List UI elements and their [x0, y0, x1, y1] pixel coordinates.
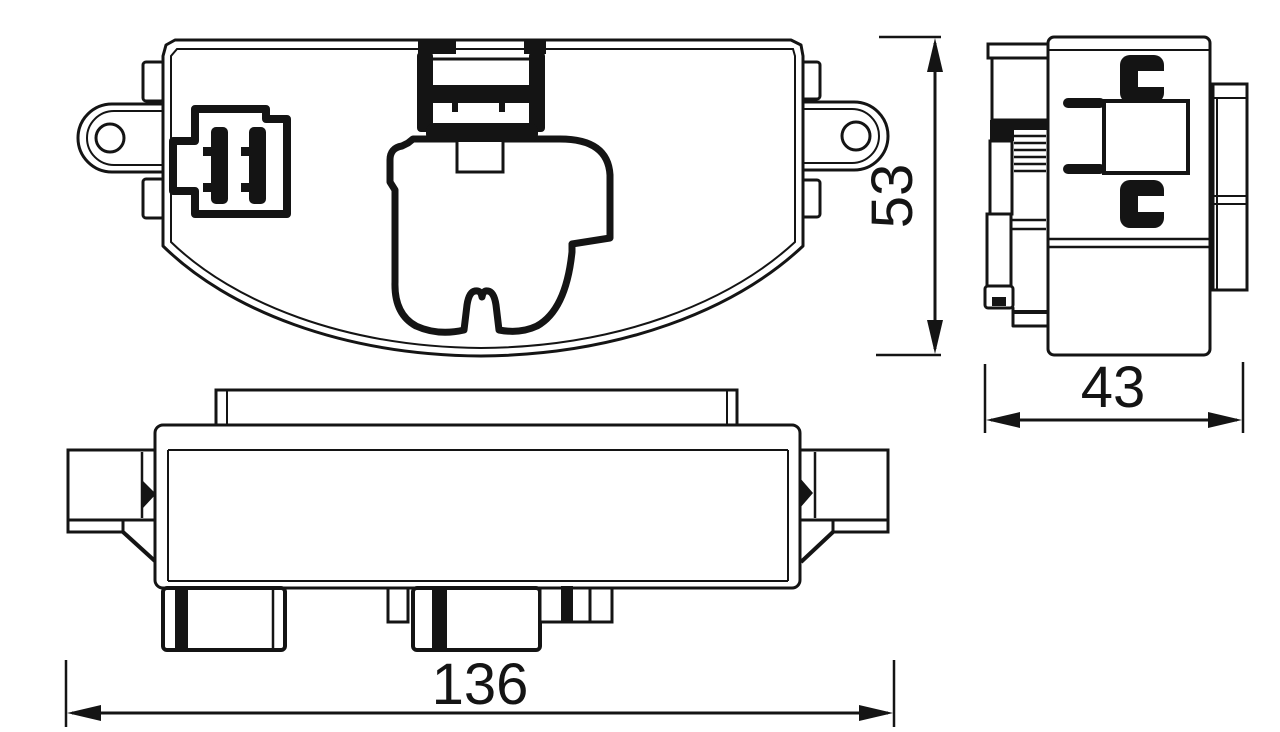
- front-view: [78, 40, 888, 356]
- edge-stub: [143, 179, 164, 218]
- block-brace: [801, 532, 833, 562]
- dimension-height: 53: [860, 37, 943, 355]
- dimension-length: 136: [66, 652, 894, 727]
- terminal-nub: [203, 183, 211, 192]
- left-mounting-ear: [78, 104, 163, 172]
- right-connector-block: [800, 450, 888, 562]
- foot-step: [388, 588, 408, 622]
- arrowhead-right: [1208, 412, 1242, 428]
- left-connector-block: [68, 450, 156, 562]
- right-mounting-ear: [803, 102, 888, 170]
- terminal-nub: [241, 183, 249, 192]
- edge-stub: [143, 62, 164, 101]
- arrowhead-bottom: [927, 320, 943, 354]
- technical-drawing: 136 43 53: [0, 0, 1280, 732]
- top-flange: [216, 390, 737, 425]
- stack-step: [990, 130, 1014, 141]
- clip-tick: [499, 103, 505, 112]
- arrowhead-top: [927, 38, 943, 72]
- tabs-outline: [540, 588, 612, 622]
- stack-column: [990, 141, 1012, 214]
- flange-outline: [1213, 84, 1247, 290]
- mounting-hole: [842, 122, 870, 150]
- stack-block: [992, 58, 1048, 120]
- side-recess: [1104, 101, 1188, 173]
- recess-prong: [1063, 98, 1105, 108]
- mounting-foot-center: [413, 586, 540, 650]
- mounting-hole: [96, 124, 124, 152]
- drawing-canvas: 136 43 53: [0, 0, 1280, 732]
- heatsink-stack: [985, 44, 1048, 326]
- blade-terminal: [249, 127, 266, 204]
- tab-rib: [561, 586, 573, 622]
- stack-column: [987, 214, 1011, 286]
- arrowhead-right: [859, 705, 893, 721]
- blade-terminal: [211, 127, 228, 204]
- arrowhead-left: [986, 412, 1020, 428]
- clip-tick: [452, 103, 458, 112]
- bottom-view: [68, 390, 888, 650]
- dimension-length-label: 136: [432, 652, 529, 717]
- terminal-nub: [203, 147, 211, 156]
- stack-cap: [988, 44, 1048, 58]
- connector-flange: [1213, 84, 1247, 290]
- stack-foot-notch: [992, 297, 1006, 306]
- foot-rib: [432, 586, 447, 650]
- clip-slot: [1138, 196, 1172, 212]
- block-ledge: [833, 520, 888, 532]
- clip-slot: [1138, 71, 1172, 87]
- dimension-height-label: 53: [860, 164, 925, 229]
- terminal-tabs: [540, 586, 612, 622]
- stack-band: [990, 120, 1048, 130]
- block-ledge: [68, 520, 123, 532]
- recess-prong: [1063, 164, 1105, 174]
- gland-notch: [457, 140, 503, 172]
- dimension-depth-label: 43: [1081, 355, 1146, 420]
- dimension-depth: 43: [985, 355, 1243, 433]
- terminal-nub: [241, 147, 249, 156]
- side-view: [985, 37, 1247, 355]
- flange-outline: [216, 390, 737, 425]
- block-outline: [800, 450, 888, 520]
- clip-cross-bar: [417, 85, 545, 103]
- mounting-foot-left: [163, 586, 285, 650]
- block-brace: [123, 532, 156, 562]
- clip-bottom-bar: [426, 123, 538, 142]
- arrowhead-left: [67, 705, 101, 721]
- foot-rib: [175, 586, 188, 650]
